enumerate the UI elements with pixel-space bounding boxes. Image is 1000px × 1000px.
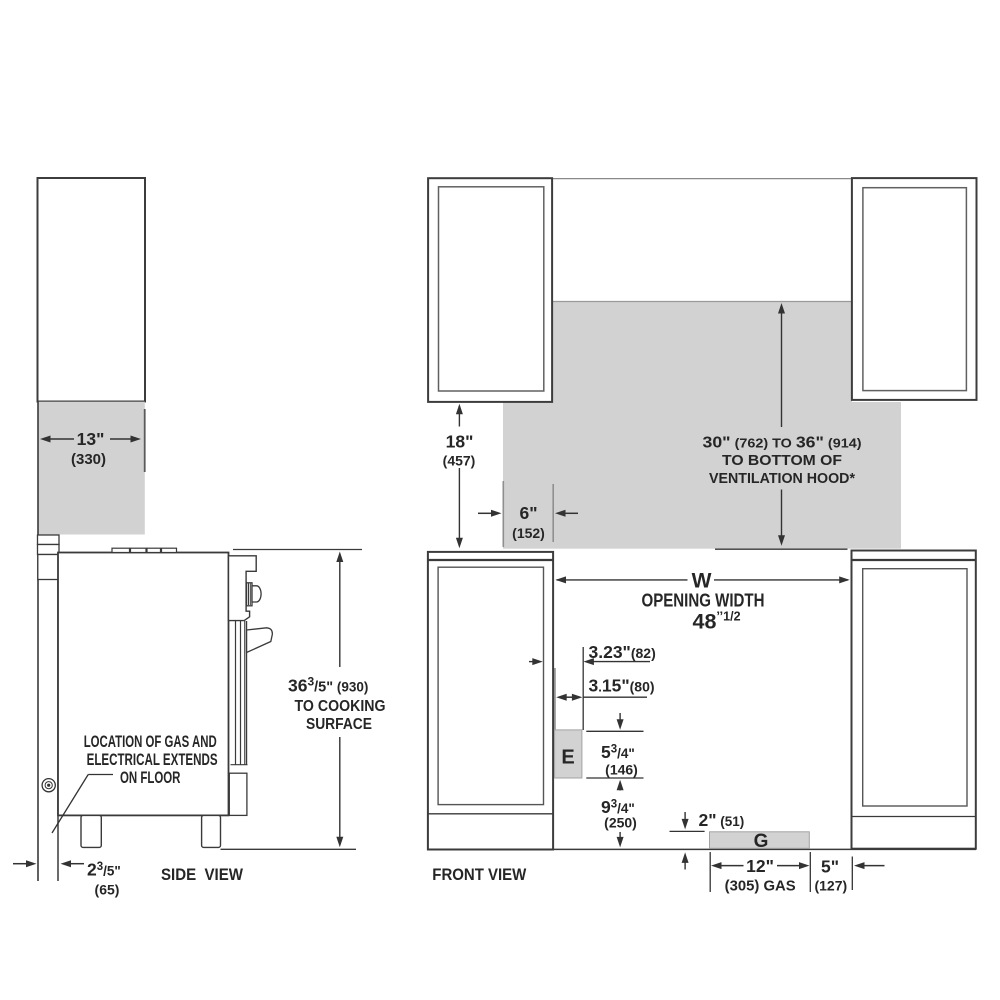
svg-text:363/5" (930): 363/5" (930) (288, 675, 368, 696)
svg-text:(330): (330) (71, 451, 106, 468)
svg-text:12": 12" (746, 856, 774, 876)
svg-text:18": 18" (446, 432, 474, 452)
svg-text:(127): (127) (814, 878, 847, 894)
svg-text:(305) GAS: (305) GAS (725, 879, 796, 895)
svg-text:(457): (457) (443, 453, 476, 469)
svg-text:53/4": 53/4" (601, 742, 635, 762)
svg-text:ELECTRICAL EXTENDS: ELECTRICAL EXTENDS (87, 751, 218, 769)
svg-text:3.15"(80): 3.15"(80) (589, 676, 655, 696)
svg-text:2" (51): 2" (51) (699, 810, 745, 830)
svg-text:(250): (250) (604, 815, 637, 831)
svg-text:3.23"(82): 3.23"(82) (589, 642, 656, 662)
svg-text:SURFACE: SURFACE (306, 716, 372, 733)
svg-text:(146): (146) (605, 762, 638, 778)
svg-text:5": 5" (821, 857, 839, 877)
svg-text:ON FLOOR: ON FLOOR (120, 769, 181, 787)
svg-text:30" (762) TO 36" (914): 30" (762) TO 36" (914) (703, 435, 862, 452)
svg-text:TO COOKING: TO COOKING (295, 698, 386, 715)
svg-text:(152): (152) (512, 525, 545, 541)
svg-text:6": 6" (519, 503, 537, 523)
svg-text:13": 13" (77, 429, 105, 449)
svg-text:(65): (65) (95, 882, 120, 898)
svg-text:LOCATION OF GAS AND: LOCATION OF GAS AND (84, 733, 217, 751)
svg-text:FRONT VIEW: FRONT VIEW (432, 866, 526, 884)
svg-text:48’’1/2: 48’’1/2 (693, 609, 741, 634)
svg-text:OPENING WIDTH: OPENING WIDTH (642, 590, 765, 610)
svg-text:E: E (561, 747, 574, 769)
svg-text:SIDE VIEW: SIDE VIEW (161, 866, 243, 884)
svg-text:TO BOTTOM OF: TO BOTTOM OF (722, 453, 842, 469)
svg-text:G: G (754, 831, 769, 852)
svg-text:VENTILATION HOOD*: VENTILATION HOOD* (709, 471, 855, 487)
svg-text:W: W (692, 570, 712, 593)
svg-text:23/5": 23/5" (87, 860, 121, 880)
